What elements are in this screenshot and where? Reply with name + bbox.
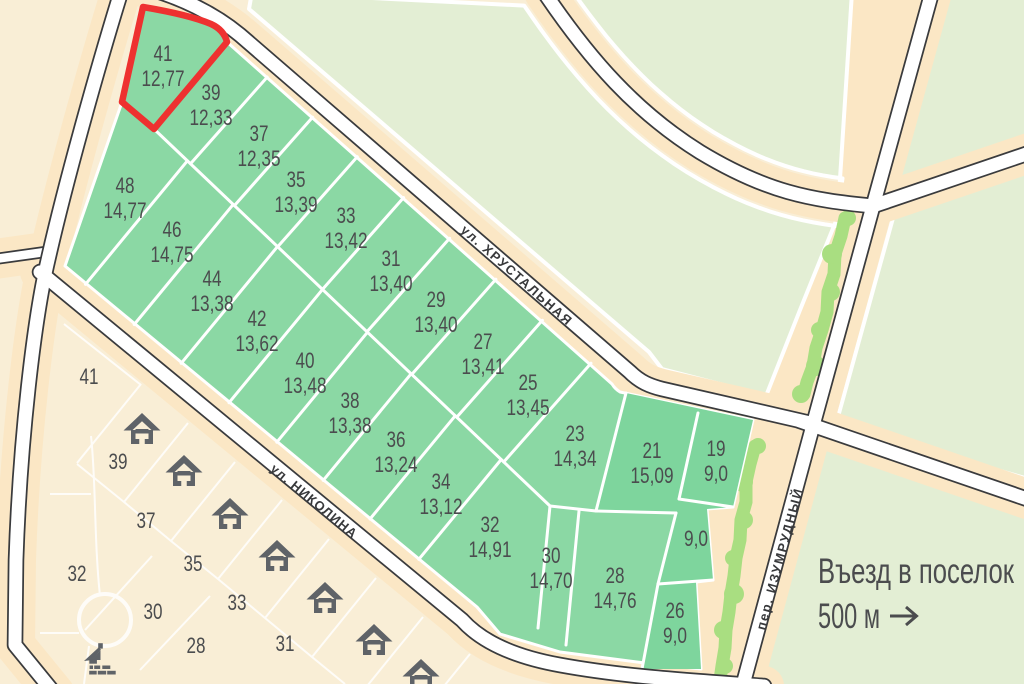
svg-text:32: 32 <box>68 561 87 586</box>
svg-text:40: 40 <box>296 348 315 373</box>
svg-text:48: 48 <box>116 173 135 198</box>
svg-text:13,40: 13,40 <box>415 312 458 337</box>
svg-text:14,77: 14,77 <box>104 198 147 223</box>
svg-text:13,42: 13,42 <box>325 228 368 253</box>
svg-text:41: 41 <box>80 364 99 389</box>
svg-text:Въезд в поселок: Въезд в поселок <box>818 552 1014 591</box>
svg-text:14,76: 14,76 <box>594 588 637 613</box>
svg-text:29: 29 <box>427 287 446 312</box>
svg-text:28: 28 <box>187 633 206 658</box>
svg-text:34: 34 <box>432 469 451 494</box>
svg-text:13,12: 13,12 <box>420 494 463 519</box>
svg-text:13,39: 13,39 <box>275 192 318 217</box>
svg-text:37: 37 <box>250 121 269 146</box>
svg-text:23: 23 <box>566 421 585 446</box>
svg-text:12,33: 12,33 <box>190 105 233 130</box>
svg-text:27: 27 <box>474 329 493 354</box>
svg-text:19: 19 <box>707 436 726 461</box>
svg-text:13,40: 13,40 <box>370 271 413 296</box>
svg-text:9,0: 9,0 <box>704 461 728 486</box>
svg-text:12,35: 12,35 <box>238 146 281 171</box>
svg-text:13,48: 13,48 <box>284 373 327 398</box>
svg-text:14,91: 14,91 <box>469 537 512 562</box>
svg-text:39: 39 <box>202 80 221 105</box>
svg-text:13,38: 13,38 <box>191 291 234 316</box>
svg-text:21: 21 <box>643 438 662 463</box>
svg-text:35: 35 <box>287 167 306 192</box>
svg-text:33: 33 <box>337 203 356 228</box>
svg-text:15,09: 15,09 <box>631 463 674 488</box>
svg-text:500 м: 500 м <box>818 597 880 636</box>
svg-text:41: 41 <box>154 41 173 66</box>
svg-text:13,62: 13,62 <box>236 331 279 356</box>
svg-text:13,41: 13,41 <box>462 354 505 379</box>
svg-text:25: 25 <box>519 370 538 395</box>
svg-text:36: 36 <box>387 427 406 452</box>
svg-text:14,34: 14,34 <box>554 446 597 471</box>
svg-text:35: 35 <box>184 551 203 576</box>
svg-text:30: 30 <box>144 599 163 624</box>
svg-text:42: 42 <box>248 306 267 331</box>
svg-text:13,24: 13,24 <box>375 452 418 477</box>
svg-text:9,0: 9,0 <box>684 526 708 551</box>
svg-text:14,70: 14,70 <box>530 568 573 593</box>
svg-text:14,75: 14,75 <box>151 242 194 267</box>
svg-text:46: 46 <box>163 217 182 242</box>
svg-text:44: 44 <box>203 266 222 291</box>
svg-text:26: 26 <box>666 598 685 623</box>
svg-text:37: 37 <box>137 508 156 533</box>
svg-text:13,38: 13,38 <box>329 413 372 438</box>
svg-text:32: 32 <box>481 512 500 537</box>
svg-text:31: 31 <box>382 246 401 271</box>
svg-text:30: 30 <box>542 543 561 568</box>
svg-text:31: 31 <box>276 631 295 656</box>
svg-text:38: 38 <box>341 388 360 413</box>
svg-text:13,45: 13,45 <box>507 395 550 420</box>
svg-text:39: 39 <box>109 449 128 474</box>
svg-text:9,0: 9,0 <box>663 623 687 648</box>
svg-text:28: 28 <box>606 563 625 588</box>
svg-text:12,77: 12,77 <box>142 66 185 91</box>
svg-text:33: 33 <box>228 590 247 615</box>
